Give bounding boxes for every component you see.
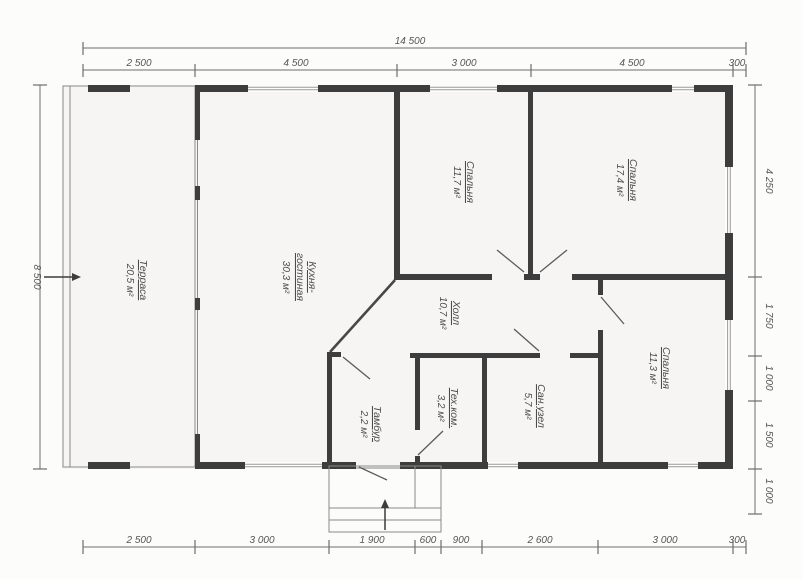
wall-segment [528, 92, 533, 277]
wall-segment [327, 352, 332, 462]
dim-label: 4 250 [763, 168, 774, 193]
wall-segment [88, 85, 130, 92]
dim-label: 900 [453, 535, 470, 546]
wall-segment [725, 390, 733, 469]
dim-label: 1 750 [763, 303, 774, 328]
wall-segment [725, 85, 733, 167]
dim-label: 8 500 [31, 264, 42, 289]
entrance-arrow-head [381, 499, 389, 508]
room-area: 11,7 м² [451, 166, 462, 198]
window [248, 85, 318, 92]
room-area: 10,7 м² [437, 297, 448, 330]
wall-segment [482, 356, 487, 462]
dim-label: 4 500 [283, 58, 308, 69]
dim-label: 14 500 [395, 36, 426, 47]
room-area: 17,4 м² [614, 164, 625, 197]
dim-label: 3 000 [249, 535, 274, 546]
wall-segment [598, 277, 603, 295]
wall-segment [415, 456, 420, 462]
window [668, 462, 698, 469]
dim-label: 300 [729, 535, 746, 546]
wall-segment [394, 92, 400, 280]
dim-label: 2 500 [125, 535, 151, 546]
wall-segment [318, 85, 430, 92]
dim-label: 1 000 [763, 365, 774, 390]
window [672, 85, 694, 92]
room-name: Терраса [137, 260, 149, 301]
wall-segment [195, 92, 200, 140]
dim-label: 1 900 [359, 535, 384, 546]
floor-plan-drawing: 14 500 2 500 4 500 3 000 4 500 300 2 500… [0, 0, 802, 579]
room-area: 20,5 м² [124, 263, 135, 297]
dimension-top-total: 14 500 [83, 36, 746, 55]
wall-segment [698, 462, 733, 469]
room-name: Спальня [627, 159, 639, 201]
room-area: 2,2 м² [358, 410, 369, 439]
wall-segment [397, 274, 492, 280]
dimension-top-segments: 2 500 4 500 3 000 4 500 300 [83, 58, 746, 77]
dim-label: 2 500 [125, 58, 151, 69]
dim-label: 3 000 [652, 535, 677, 546]
room-area: 30,3 м² [280, 261, 291, 294]
wall-segment [415, 358, 420, 430]
wall-segment [598, 330, 603, 462]
dim-label: 2 600 [526, 535, 552, 546]
room-name: Спальня [660, 347, 672, 389]
window [725, 167, 733, 233]
room-area: 3,2 м² [435, 395, 446, 423]
wall-segment [88, 462, 130, 469]
wall-segment [410, 353, 540, 358]
wall-segment [195, 85, 248, 92]
window [488, 462, 518, 469]
wall-segment [570, 353, 601, 358]
room-area: 11,3 м² [647, 352, 658, 384]
room-name: Кухня- [306, 261, 318, 293]
wall-segment [518, 462, 668, 469]
dim-label: 1 000 [763, 478, 774, 503]
dimension-right: 4 250 1 750 1 000 1 500 1 000 [748, 85, 774, 514]
wall-segment [195, 298, 200, 310]
room-name: Спальня [464, 161, 476, 203]
porch [329, 466, 441, 532]
dim-label: 600 [420, 535, 437, 546]
room-name: Тамбур [371, 406, 383, 442]
wall-segment [195, 434, 200, 462]
wall-segment [524, 274, 540, 280]
dim-label: 300 [729, 58, 746, 69]
window [245, 462, 322, 469]
wall-segment [195, 186, 200, 200]
wall-segment [195, 462, 245, 469]
dim-label: 3 000 [451, 58, 476, 69]
room-area: 5,7 м² [522, 393, 533, 421]
wall-segment [497, 85, 672, 92]
room-name: Сан.узел [535, 384, 547, 428]
dim-label: 4 500 [619, 58, 644, 69]
room-name: гостиная [294, 253, 306, 301]
dim-label: 1 500 [763, 422, 774, 447]
window [725, 320, 733, 390]
room-name: Тех.ком. [448, 388, 460, 429]
wall-segment [572, 274, 733, 280]
dimension-bottom: 2 500 3 000 1 900 600 900 2 600 3 000 30… [83, 535, 746, 554]
window [430, 85, 497, 92]
room-name: Холл [450, 300, 462, 325]
wall-segment [327, 352, 341, 357]
floor-plan-page: 14 500 2 500 4 500 3 000 4 500 300 2 500… [0, 0, 802, 579]
